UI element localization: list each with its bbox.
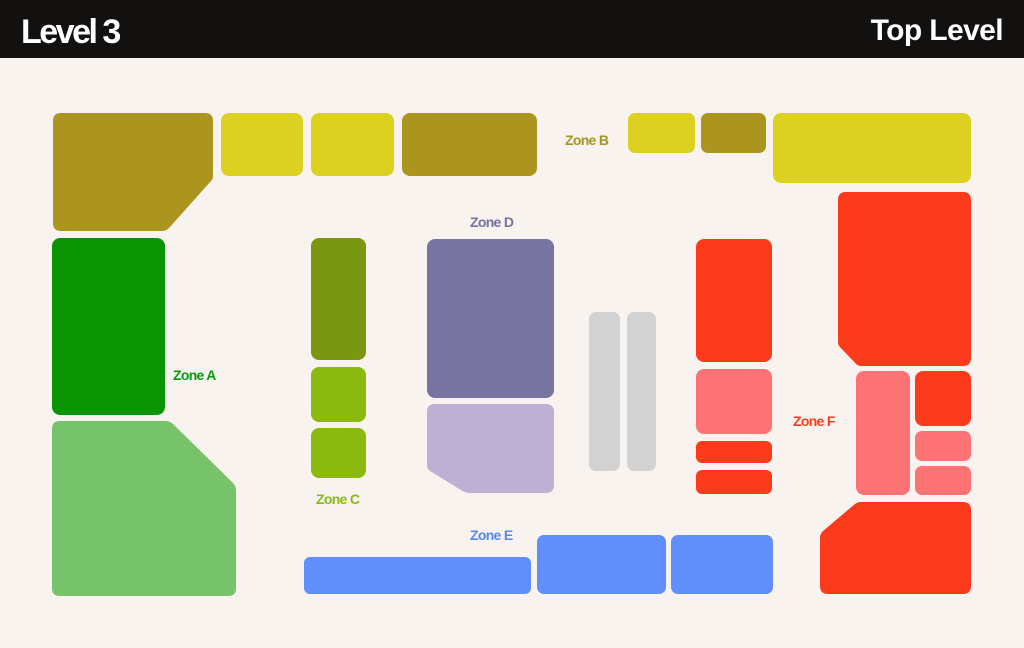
svg-text:Zone A: Zone A xyxy=(173,367,216,383)
svg-text:Zone E: Zone E xyxy=(470,527,513,543)
svg-text:Zone B: Zone B xyxy=(565,132,609,148)
svg-text:Zone D: Zone D xyxy=(470,214,514,230)
svg-text:Zone C: Zone C xyxy=(316,491,360,507)
svg-text:Zone F: Zone F xyxy=(793,413,836,429)
svg-text:Level 3: Level 3 xyxy=(21,13,120,51)
svg-text:Top Level: Top Level xyxy=(871,14,1003,47)
